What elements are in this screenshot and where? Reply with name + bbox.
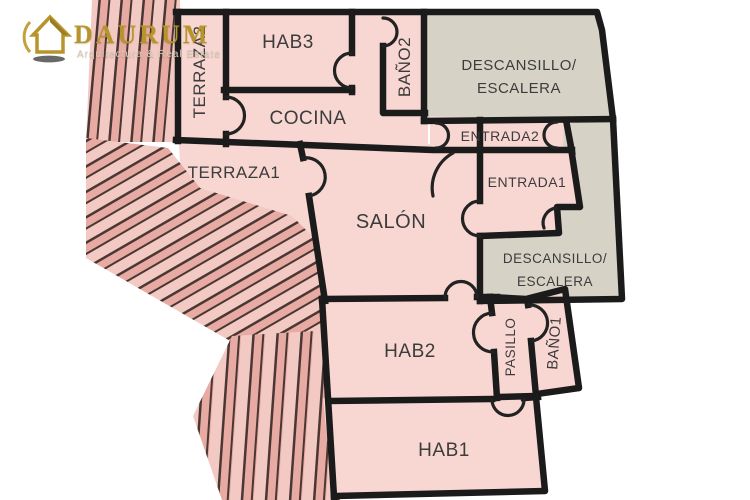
- room-label-descansillo-top-1: DESCANSILLO/: [461, 57, 577, 74]
- room-label-entrada2: ENTRADA2: [461, 128, 540, 144]
- room-label-bano2: BAÑO2: [395, 37, 414, 97]
- wall-pasillo-bottom: [497, 396, 536, 397]
- room-label-salon: SALÓN: [356, 210, 426, 233]
- room-label-entrada1: ENTRADA1: [488, 174, 567, 190]
- house-icon: [20, 6, 76, 66]
- room-label-descansillo-top-2: ESCALERA: [477, 80, 561, 97]
- room-label-hab3: HAB3: [262, 32, 314, 53]
- room-label-descansillo-bottom-2: ESCALERA: [517, 274, 593, 289]
- wall-descansillo-top-bottom: [424, 119, 613, 121]
- floor-plan-svg: TERRAZA2 HAB3 BAÑO2 DESCANSILLO/ ESCALER…: [0, 0, 750, 500]
- room-label-terraza1: TERRAZA1: [188, 163, 281, 182]
- decor-stripes-bottom: [193, 330, 340, 500]
- brand-name: DAURUM: [74, 20, 210, 50]
- brand-logo: DAURUM Arquitectura & Real Estate: [14, 4, 234, 68]
- room-label-hab1: HAB1: [418, 440, 470, 461]
- room-label-pasillo: PASILLO: [503, 318, 518, 377]
- room-label-hab2: HAB2: [384, 341, 436, 362]
- brand-tagline: Arquitectura & Real Estate: [77, 49, 221, 60]
- floorplan-page: TERRAZA2 HAB3 BAÑO2 DESCANSILLO/ ESCALER…: [0, 0, 750, 500]
- room-label-cocina: COCINA: [270, 108, 347, 129]
- room-label-descansillo-bottom-1: DESCANSILLO/: [503, 251, 607, 266]
